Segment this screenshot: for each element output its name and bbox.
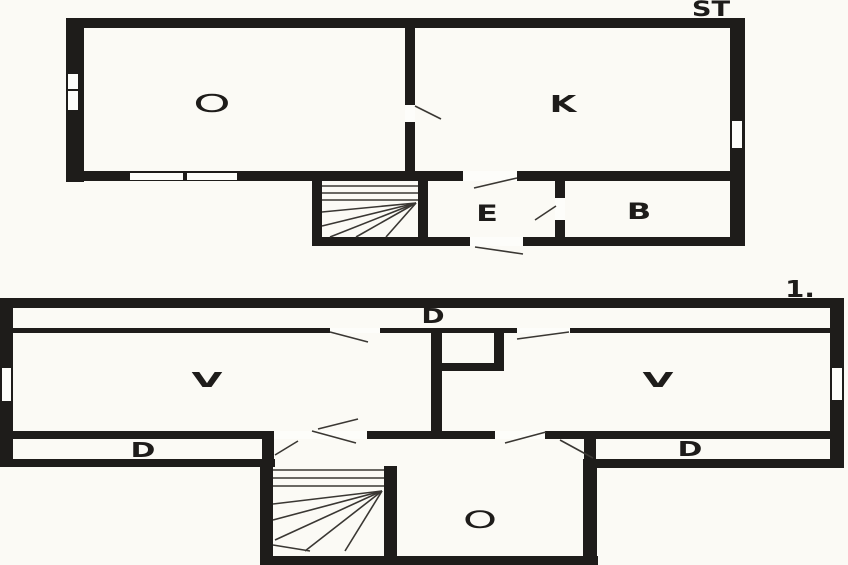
window: [68, 91, 78, 110]
room-label-o-lower: O: [463, 507, 497, 534]
room-label-k: K: [550, 91, 578, 118]
door-opening: [330, 328, 380, 333]
door-opening: [555, 198, 565, 220]
room-label-o-upper: O: [193, 89, 230, 118]
closet-wall-right: [494, 333, 504, 371]
window: [832, 368, 842, 400]
background: [0, 0, 848, 565]
door-opening: [274, 431, 367, 439]
interior-wall-o-k: [405, 28, 415, 172]
window: [732, 121, 742, 148]
protrusion-wall-right: [583, 459, 597, 565]
room-label-v-left: V: [192, 369, 224, 392]
knee-wall-top: [13, 328, 830, 333]
window: [130, 173, 183, 180]
exterior-wall-bottom-right: [596, 459, 844, 468]
floor-label-st: ST: [692, 0, 731, 21]
exterior-wall-bottom: [312, 237, 745, 246]
door-opening-entrance: [470, 237, 523, 246]
interior-wall-divider: [431, 333, 442, 437]
exterior-wall-top: [66, 18, 745, 28]
floor-label-1: 1.: [785, 275, 815, 302]
floor-plan-document: ST O K E B: [0, 0, 848, 565]
room-label-d-top: D: [421, 304, 444, 328]
window: [2, 368, 11, 401]
window: [68, 74, 78, 89]
protrusion-wall-left: [260, 459, 273, 565]
room-label-v-right: V: [643, 369, 675, 392]
stair-wall-right: [418, 181, 428, 240]
room-label-b: B: [627, 200, 651, 225]
window: [187, 173, 237, 180]
stair-wall-left: [312, 181, 322, 246]
room-label-d-left: D: [131, 439, 156, 463]
wall-pillar-left: [262, 431, 274, 459]
stair-wall-right: [384, 466, 397, 556]
room-label-e: E: [476, 202, 498, 227]
closet-wall-bottom: [442, 363, 494, 371]
door-opening: [405, 105, 415, 122]
floor-plan-canvas: ST O K E B: [0, 0, 848, 565]
protrusion-wall-bottom: [260, 556, 598, 565]
room-label-d-right: D: [678, 438, 703, 462]
interior-wall-v-bottom: [13, 431, 830, 439]
